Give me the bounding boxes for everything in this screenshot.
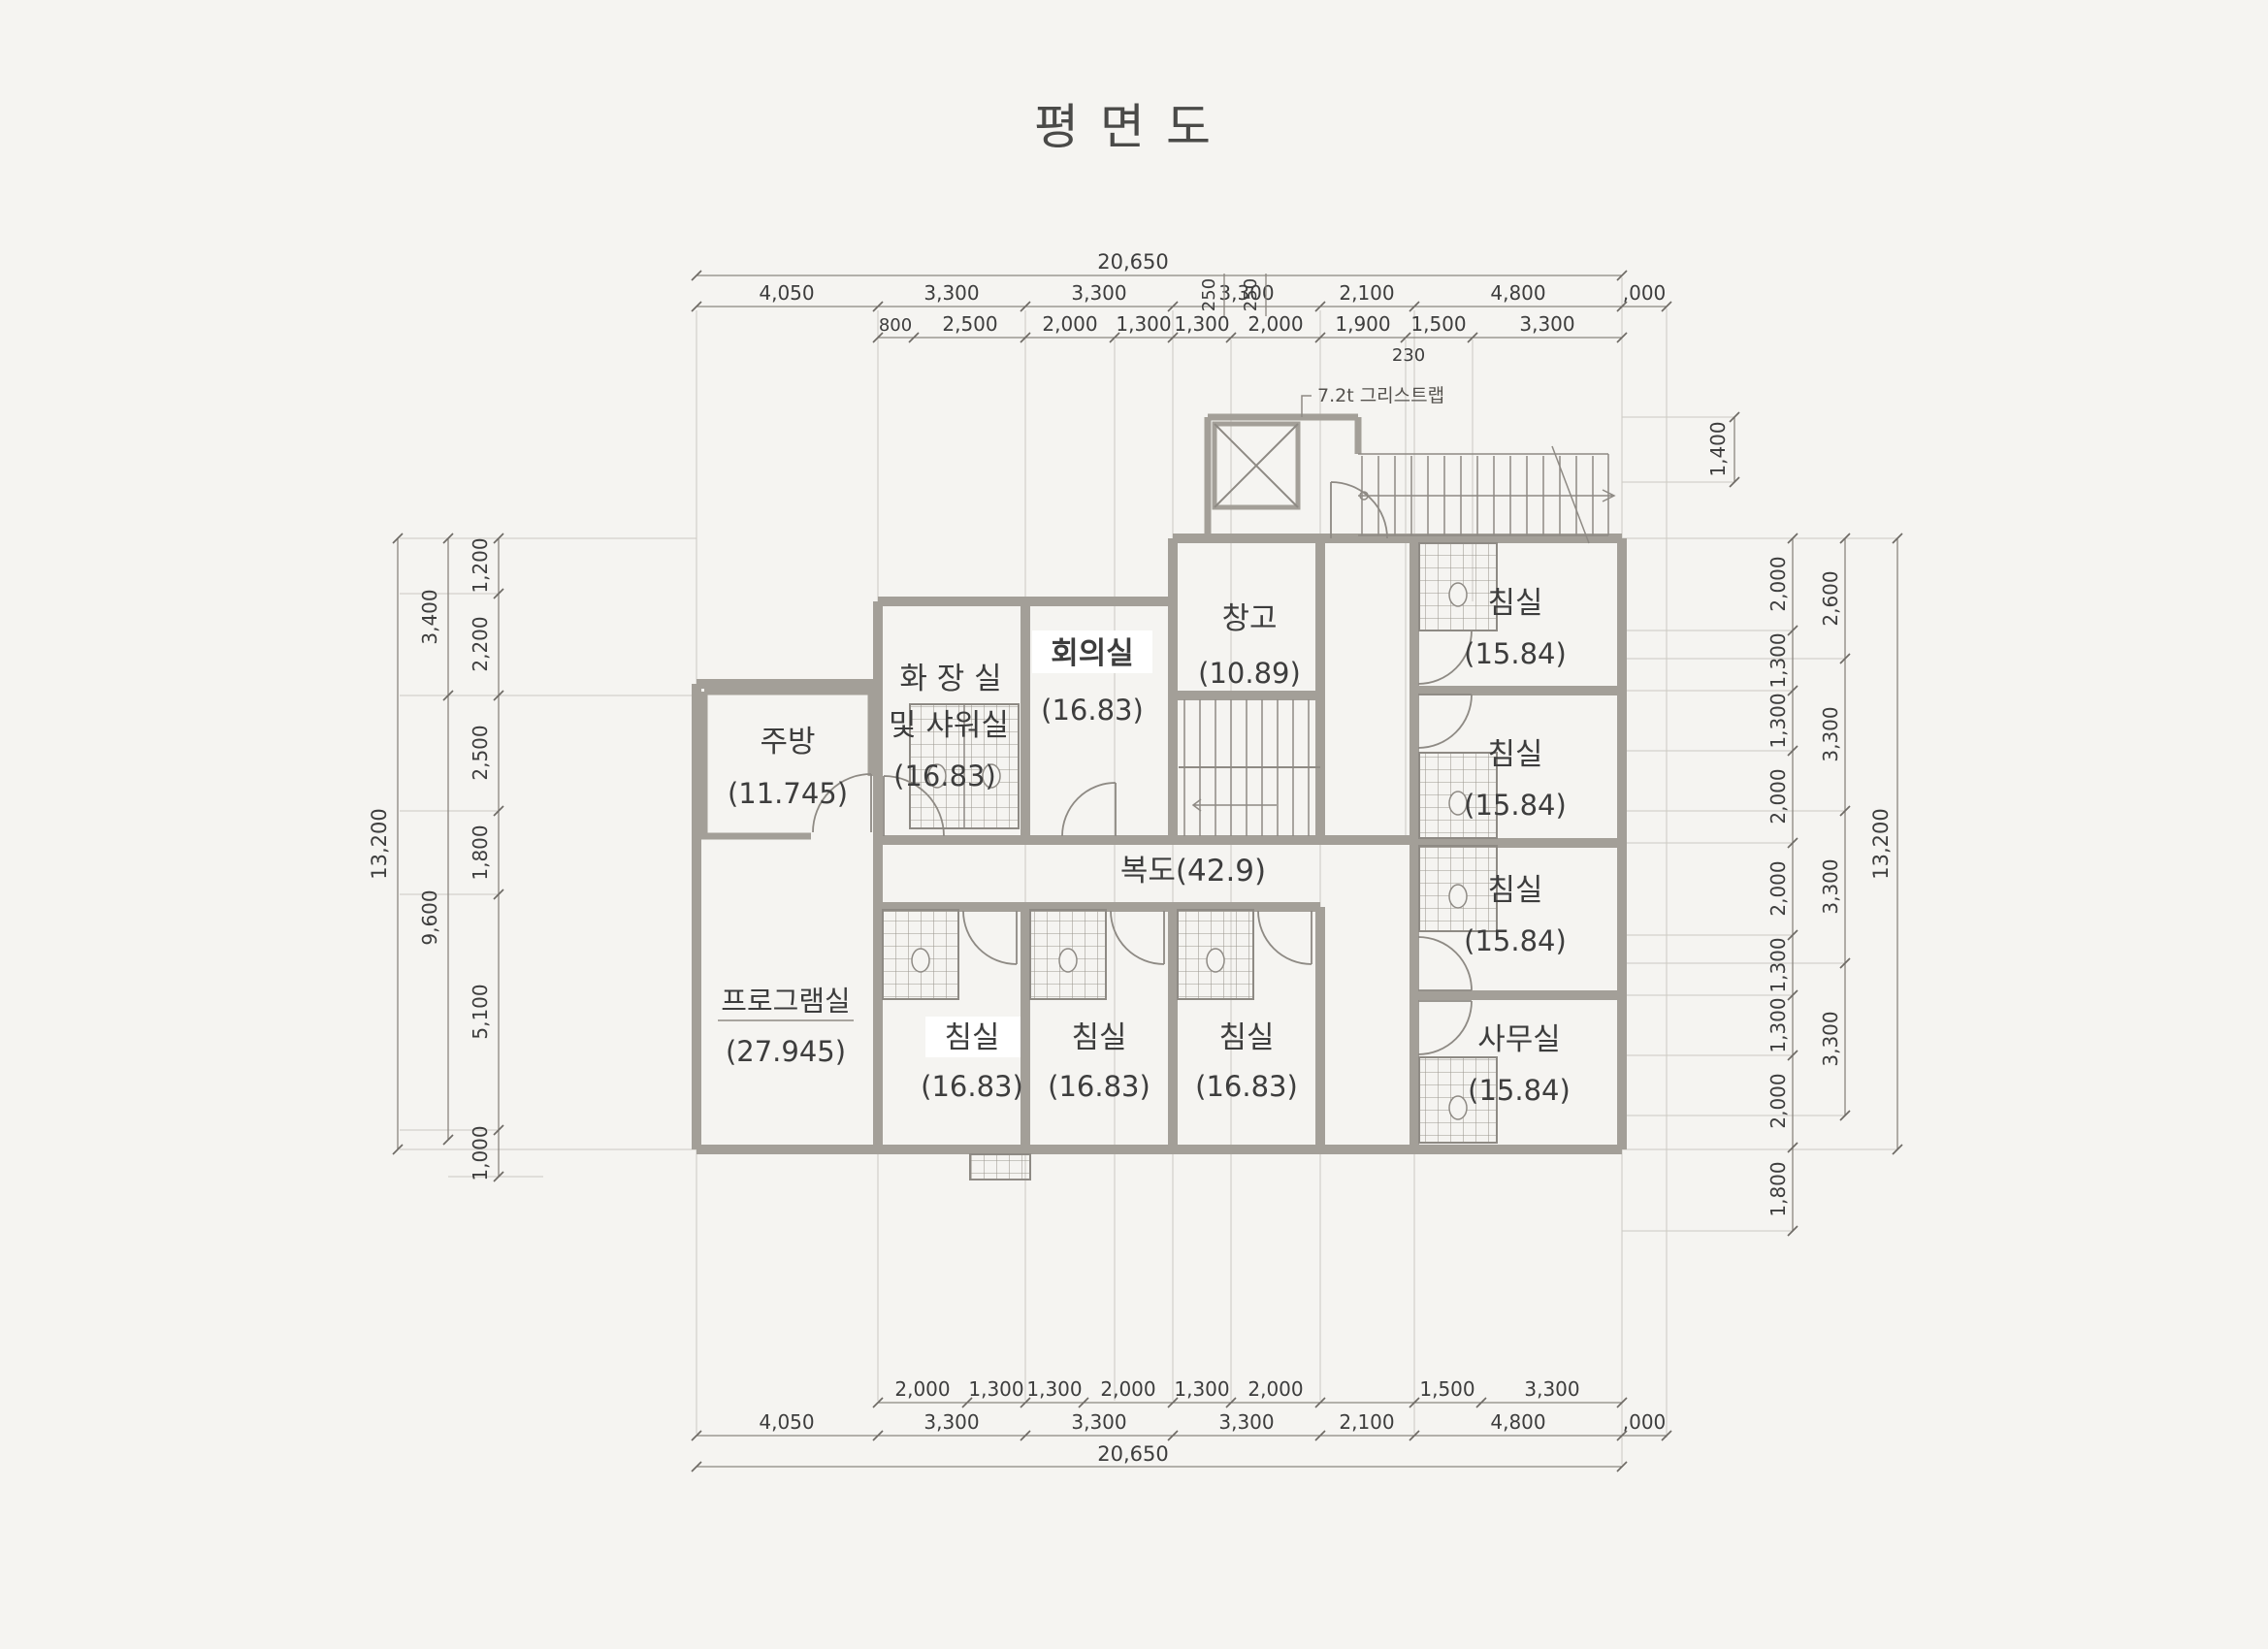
room-toilet-area: (16.83) — [893, 760, 996, 792]
room-meeting-name: 회의실 — [1051, 636, 1134, 671]
dim-right-i7: 2,000 — [1766, 1073, 1790, 1128]
room-storage-area: (10.89) — [1198, 657, 1301, 690]
dim-left-i0: 1,200 — [469, 537, 492, 593]
dim-bot-b0: 2,000 — [894, 1377, 950, 1401]
room-meeting-area: (16.83) — [1041, 694, 1144, 727]
floor-plan-page: 평면도 — [0, 0, 2268, 1649]
dim-right-m3: 3,300 — [1819, 1011, 1842, 1066]
interior-stair — [1179, 699, 1320, 836]
toilet-icon — [1449, 885, 1467, 908]
dim-right-i6: 1,300 — [1766, 997, 1790, 1052]
dim-bot-a6: ,000 — [1623, 1410, 1667, 1434]
floor-plan-drawing: 평면도 — [0, 0, 2268, 1649]
dim-bot-b7: 3,300 — [1524, 1377, 1579, 1401]
dim-bot-a2: 3,300 — [1071, 1410, 1126, 1434]
room-bed-tr-area: (15.84) — [1464, 637, 1567, 670]
toilet-icon — [1059, 949, 1077, 972]
dim-top-a2: 3,300 — [1071, 281, 1126, 305]
toilet-icon — [1449, 583, 1467, 606]
room-bed-r3-area: (15.84) — [1464, 924, 1567, 957]
dim-top-b0: 800 — [879, 315, 912, 336]
room-bed-r2-area: (15.84) — [1464, 789, 1567, 822]
dim-right-i1: 1,300 — [1766, 632, 1790, 688]
room-kitchen-name: 주방 — [760, 725, 815, 760]
room-program-name: 프로그램실 — [721, 985, 850, 1018]
dim-right-i8: 1,800 — [1766, 1161, 1790, 1216]
kitchen-walls — [704, 692, 871, 836]
dim-right-i3: 2,000 — [1766, 768, 1790, 824]
dim-right-small0: 250 — [1199, 278, 1219, 311]
room-toilet-name1: 화 장 실 — [899, 662, 1001, 696]
dim-top-b6: 1,900 — [1335, 312, 1390, 336]
dim-right-i0: 2,000 — [1766, 556, 1790, 611]
dim-bot-overall: 20,650 — [1097, 1442, 1168, 1466]
toilet-icon — [1449, 1096, 1467, 1119]
annotation-group: 7.2t 그리스트랩 — [1302, 385, 1444, 417]
dim-top-a1: 3,300 — [923, 281, 979, 305]
dim-right-stair: 1,400 — [1706, 421, 1730, 476]
dim-bot-a5: 4,800 — [1490, 1410, 1545, 1434]
dim-bot-b3: 2,000 — [1100, 1377, 1155, 1401]
dim-bot-b6: 1,500 — [1419, 1377, 1474, 1401]
dim-top-b8: 3,300 — [1519, 312, 1574, 336]
dim-left-m0: 3,400 — [418, 589, 441, 644]
dim-top-b4: 1,300 — [1174, 312, 1229, 336]
dim-top-a4: 2,100 — [1339, 281, 1394, 305]
room-bed-r2-name: 침실 — [1487, 737, 1542, 772]
exterior-stub — [970, 1154, 1030, 1180]
toilet-icon — [912, 949, 929, 972]
dim-top-offset: 230 — [1392, 345, 1425, 366]
room-bed-b3-name: 침실 — [1218, 1020, 1274, 1055]
dim-left-i1: 2,200 — [469, 616, 492, 671]
room-bed-b2-area: (16.83) — [1048, 1070, 1150, 1103]
dim-top-b5: 2,000 — [1247, 312, 1303, 336]
dim-bot-a3: 3,300 — [1218, 1410, 1274, 1434]
dim-left-overall: 13,200 — [368, 808, 391, 879]
dim-right-small1: 250 — [1241, 278, 1261, 311]
room-bed-r3-name: 침실 — [1487, 873, 1542, 908]
stair-break-line — [1552, 446, 1589, 543]
stair-block-walls — [1208, 417, 1358, 538]
room-bed-b1-name: 침실 — [944, 1020, 999, 1055]
dim-right-i2: 1,300 — [1766, 693, 1790, 748]
dim-top-a5: 4,800 — [1490, 281, 1545, 305]
room-bed-tr-name: 침실 — [1487, 586, 1542, 621]
room-program-area: (27.945) — [726, 1035, 846, 1068]
exterior-stair — [1358, 446, 1614, 543]
elevator-annotation: 7.2t 그리스트랩 — [1317, 385, 1444, 406]
room-office-name: 사무실 — [1477, 1022, 1561, 1057]
dim-top-b7: 1,500 — [1410, 312, 1466, 336]
dim-top-b1: 2,500 — [942, 312, 997, 336]
dim-left-i5: 1,000 — [469, 1125, 492, 1180]
elevator-shaft — [1215, 424, 1298, 507]
dim-right-i4: 2,000 — [1766, 860, 1790, 916]
room-bed-b2-name: 침실 — [1071, 1020, 1126, 1055]
dimensions-top: 20,650 4,050 3,300 3,300 3,300 2,100 4,8… — [692, 250, 1671, 366]
dim-bot-a4: 2,100 — [1339, 1410, 1394, 1434]
dim-bot-a1: 3,300 — [923, 1410, 979, 1434]
dim-right-i5: 1,300 — [1766, 937, 1790, 992]
dim-left-i2: 2,500 — [469, 725, 492, 780]
dim-right-overall: 13,200 — [1869, 808, 1893, 879]
room-bed-b1-area: (16.83) — [921, 1070, 1023, 1103]
dim-left-i4: 5,100 — [469, 984, 492, 1039]
dim-top-b3: 1,300 — [1116, 312, 1171, 336]
dim-top-a0: 4,050 — [759, 281, 814, 305]
dim-top-a6: ,000 — [1623, 281, 1667, 305]
dim-right-m2: 3,300 — [1819, 858, 1842, 914]
dim-bot-b1: 1,300 — [968, 1377, 1023, 1401]
room-corridor-name: 복도(42.9) — [1120, 854, 1266, 889]
dim-left-m1: 9,600 — [418, 889, 441, 945]
drawing-title: 평면도 — [1034, 99, 1232, 155]
dim-left-i3: 1,800 — [469, 824, 492, 880]
room-office-area: (15.84) — [1468, 1074, 1571, 1107]
room-bed-b3-area: (16.83) — [1195, 1070, 1298, 1103]
dimensions-left: 13,200 3,400 9,600 1,200 2,200 2,500 1,8… — [368, 533, 503, 1181]
dim-top-b2: 2,000 — [1042, 312, 1097, 336]
dim-bot-b4: 1,300 — [1174, 1377, 1229, 1401]
room-toilet-name2: 및 샤워실 — [889, 708, 1009, 743]
room-kitchen-area: (11.745) — [728, 777, 848, 810]
elevator-x-icon — [1215, 424, 1298, 507]
toilet-icon — [1207, 949, 1224, 972]
dim-top-overall: 20,650 — [1097, 250, 1168, 274]
dim-bot-a0: 4,050 — [759, 1410, 814, 1434]
dim-bot-b2: 1,300 — [1026, 1377, 1082, 1401]
dimensions-bottom: 2,000 1,300 1,300 2,000 1,300 2,000 1,50… — [692, 1377, 1671, 1471]
dim-right-m0: 2,600 — [1819, 570, 1842, 626]
dim-bot-b5: 2,000 — [1247, 1377, 1303, 1401]
dim-right-m1: 3,300 — [1819, 706, 1842, 761]
room-storage-name: 창고 — [1221, 601, 1277, 636]
